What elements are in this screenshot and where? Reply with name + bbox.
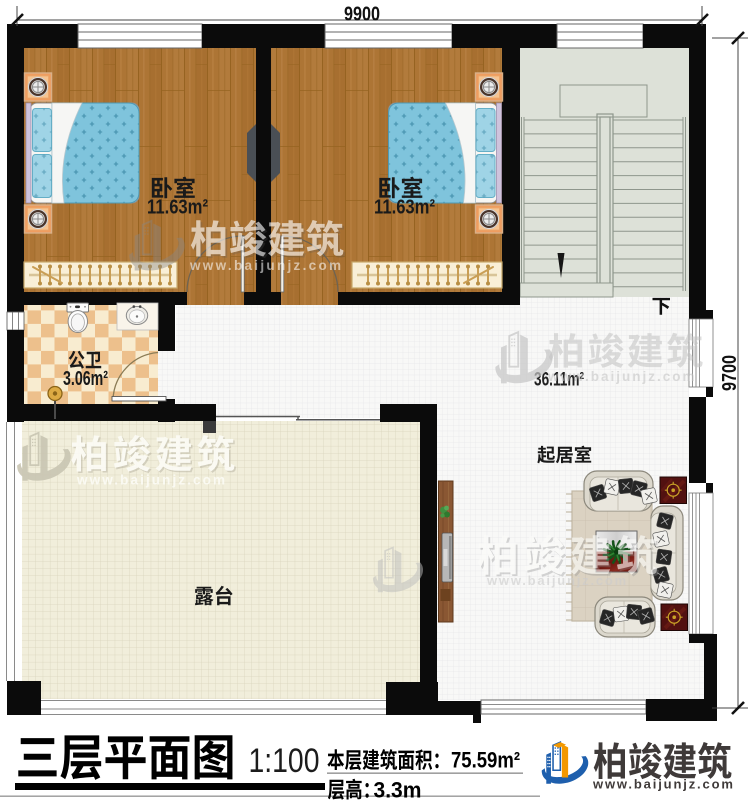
svg-text:3.3m: 3.3m	[374, 778, 422, 803]
svg-text:www.baijunjz.com: www.baijunjz.com	[592, 777, 735, 792]
svg-text:1:100: 1:100	[249, 742, 320, 780]
svg-text:75.59m²: 75.59m²	[451, 748, 520, 773]
svg-text:9900: 9900	[344, 3, 380, 26]
svg-text:11.63m²: 11.63m²	[147, 197, 208, 219]
svg-text:www.baijunjz.com: www.baijunjz.com	[547, 369, 697, 384]
svg-text:11.63m²: 11.63m²	[374, 197, 435, 219]
svg-text:www.baijunjz.com: www.baijunjz.com	[189, 258, 343, 273]
svg-text:3.06m²: 3.06m²	[63, 368, 108, 390]
svg-text:www.baijunjz.com: www.baijunjz.com	[76, 473, 227, 488]
svg-text:www.baijunjz.com: www.baijunjz.com	[486, 573, 628, 588]
svg-text:9700: 9700	[718, 355, 741, 391]
